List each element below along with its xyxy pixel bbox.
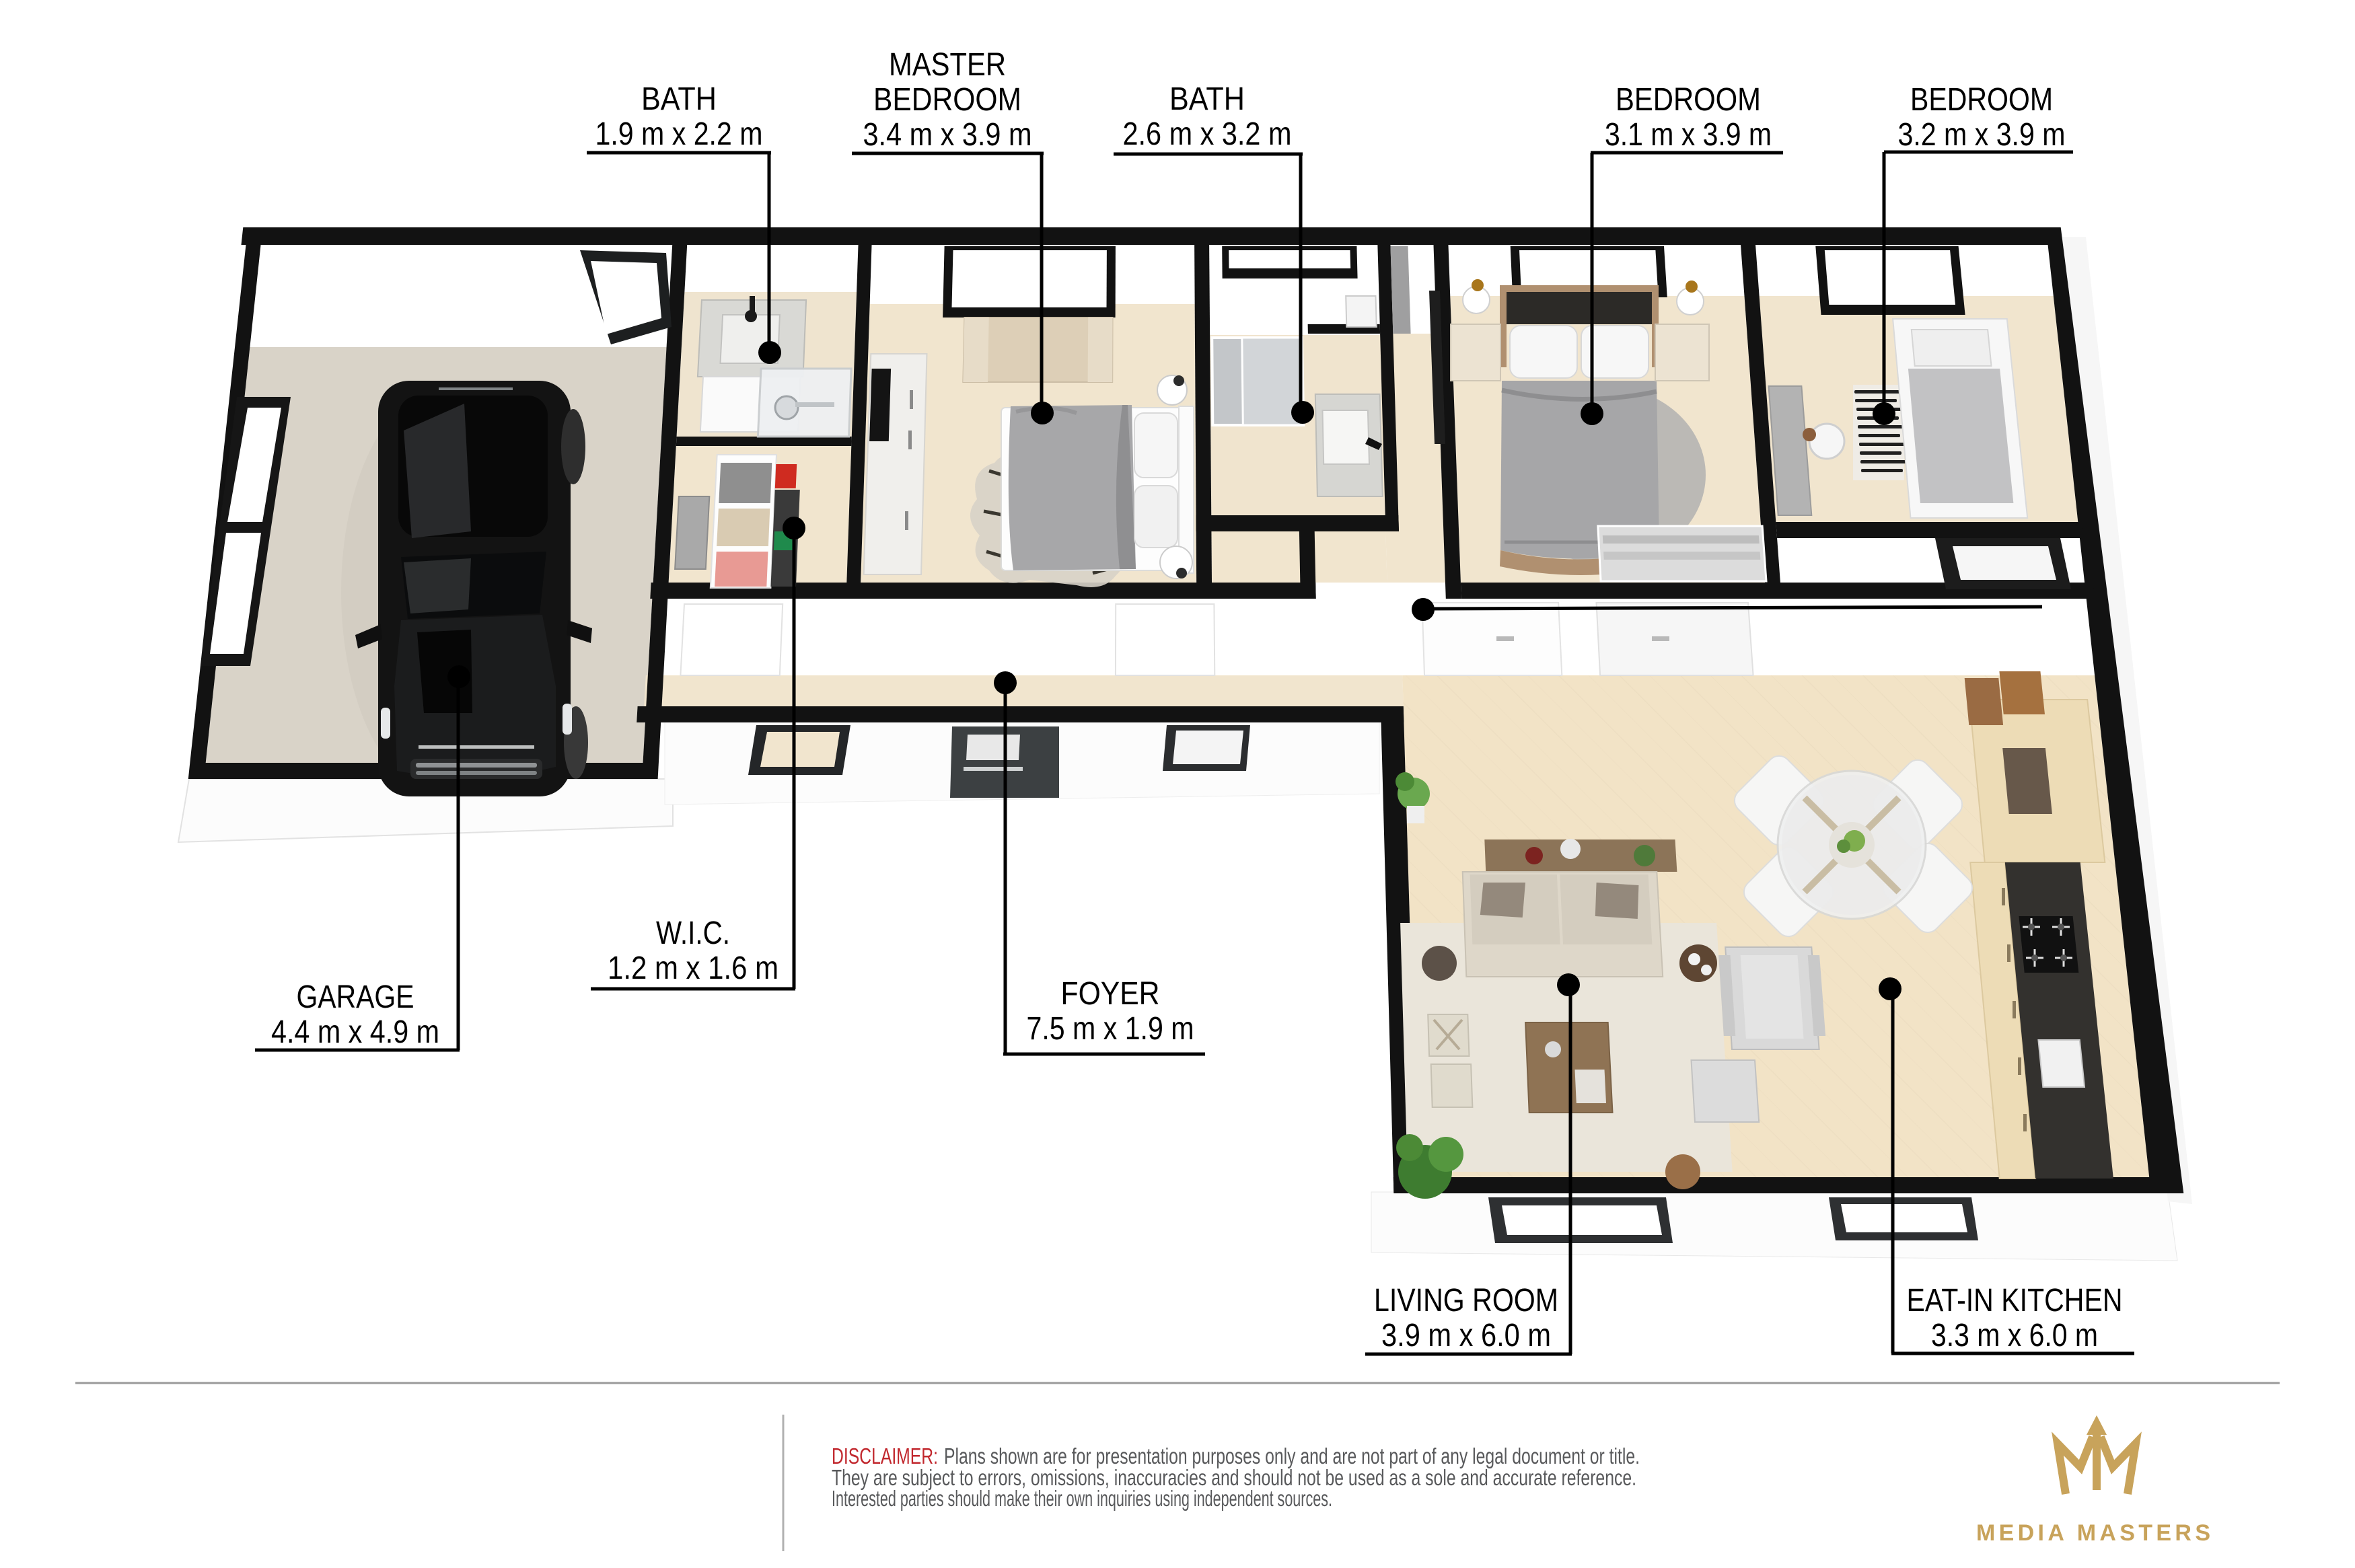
- svg-text:3.3 m x 6.0 m: 3.3 m x 6.0 m: [1931, 1318, 2098, 1353]
- svg-text:MASTER: MASTER: [889, 47, 1006, 83]
- svg-text:EAT-IN KITCHEN: EAT-IN KITCHEN: [1907, 1283, 2123, 1318]
- svg-text:LIVING ROOM: LIVING ROOM: [1374, 1283, 1558, 1318]
- svg-text:BEDROOM: BEDROOM: [1616, 82, 1761, 118]
- svg-text:3.9 m x 6.0 m: 3.9 m x 6.0 m: [1381, 1318, 1551, 1353]
- svg-text:7.5 m x 1.9 m: 7.5 m x 1.9 m: [1027, 1011, 1194, 1047]
- svg-text:3.2 m x 3.9 m: 3.2 m x 3.9 m: [1898, 117, 2066, 153]
- svg-text:3.1 m x 3.9 m: 3.1 m x 3.9 m: [1605, 117, 1772, 153]
- svg-text:FOYER: FOYER: [1061, 976, 1160, 1012]
- svg-text:BATH: BATH: [641, 81, 717, 117]
- svg-text:Interested parties should make: Interested parties should make their own…: [832, 1486, 1332, 1511]
- svg-text:BEDROOM: BEDROOM: [873, 82, 1021, 118]
- svg-text:MEDIA MASTERS: MEDIA MASTERS: [1976, 1520, 2217, 1546]
- svg-text:BATH: BATH: [1169, 81, 1245, 117]
- svg-text:4.4 m x 4.9 m: 4.4 m x 4.9 m: [271, 1014, 439, 1050]
- svg-text:GARAGE: GARAGE: [297, 979, 414, 1015]
- svg-text:3.4 m x 3.9 m: 3.4 m x 3.9 m: [863, 117, 1032, 153]
- svg-text:W.I.C.: W.I.C.: [656, 916, 730, 951]
- svg-text:BEDROOM: BEDROOM: [1910, 82, 2053, 118]
- svg-text:1.9 m x 2.2 m: 1.9 m x 2.2 m: [595, 116, 763, 152]
- svg-text:1.2 m x 1.6 m: 1.2 m x 1.6 m: [608, 950, 778, 986]
- svg-text:2.6 m x 3.2 m: 2.6 m x 3.2 m: [1123, 116, 1292, 152]
